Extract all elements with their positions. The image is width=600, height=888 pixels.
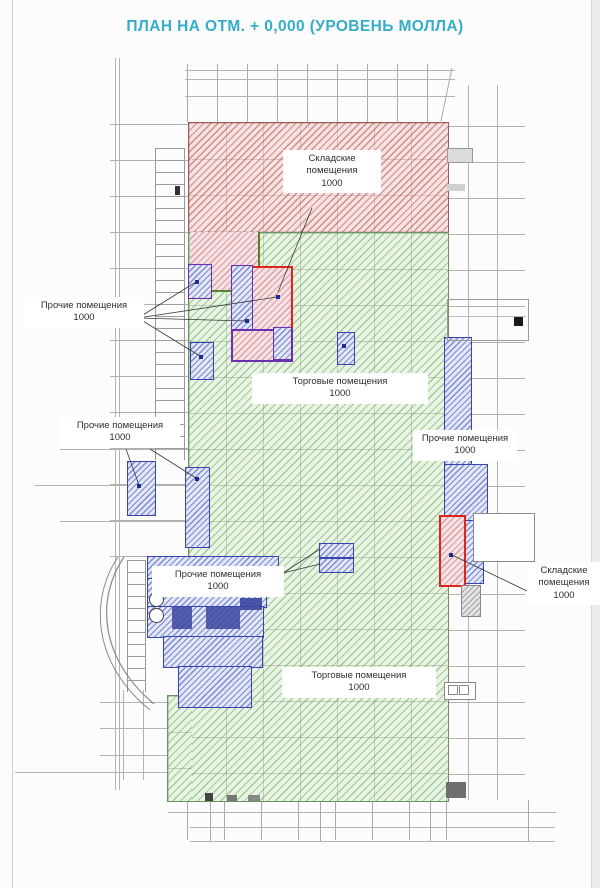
marker-dot	[449, 553, 453, 557]
grid-line	[210, 800, 211, 841]
entrance-block	[178, 666, 252, 708]
label-value: 1000	[254, 388, 426, 400]
loading-dock	[473, 513, 535, 562]
label-value: 1000	[62, 432, 178, 444]
page-edge-line	[12, 0, 13, 888]
retail-zone-main	[188, 232, 449, 802]
grid-line	[320, 800, 321, 841]
grid-line	[190, 827, 555, 828]
small-room-1	[319, 543, 354, 558]
dark-block	[446, 782, 466, 798]
label-value: 1000	[415, 445, 515, 457]
grid-line	[185, 79, 455, 80]
grid-line	[430, 800, 431, 841]
center-small-box	[337, 332, 355, 365]
grid-line	[185, 96, 455, 97]
grid-line	[528, 800, 529, 841]
label-text: Торговые помещения	[254, 376, 426, 388]
column-marker	[514, 317, 523, 326]
scanned-plan-page: ПЛАН НА ОТМ. + 0,000 (УРОВЕНЬ МОЛЛА)	[0, 0, 600, 888]
column-circle	[149, 608, 164, 623]
label-retail-bottom: Торговые помещения 1000	[282, 667, 436, 698]
left-room-a	[127, 461, 156, 516]
label-retail-center: Торговые помещения 1000	[252, 373, 428, 404]
entrance-core	[172, 607, 192, 629]
grid-line	[15, 772, 167, 773]
retail-zone-extension	[167, 695, 192, 802]
label-text: Прочие помещения	[62, 420, 178, 432]
label-value: 1000	[284, 682, 434, 694]
label-value: 1000	[303, 178, 361, 190]
grid-line	[168, 812, 556, 813]
wall-marker	[175, 186, 180, 195]
entrance-block	[163, 636, 263, 668]
grid-line	[60, 521, 188, 522]
grid-line	[100, 728, 167, 729]
marker-dot	[342, 344, 346, 348]
entrance-core	[240, 598, 262, 610]
roof-block	[447, 184, 465, 191]
door-marker	[248, 795, 260, 801]
service-block-cell	[448, 685, 458, 695]
label-value: 1000	[154, 581, 282, 593]
stair-ladder	[127, 560, 146, 692]
grid-line	[35, 485, 188, 486]
roof-block	[447, 148, 473, 163]
label-other-upper-left: Прочие помещения 1000	[24, 297, 144, 328]
label-text: Торговые помещения	[284, 670, 434, 682]
entrance-core	[206, 607, 240, 629]
grid-line	[185, 70, 455, 71]
label-text: Складские помещения	[303, 153, 361, 178]
marker-dot	[276, 295, 280, 299]
page-edge-strip	[591, 0, 600, 888]
label-text: Прочие помещения	[26, 300, 142, 312]
marker-dot	[195, 280, 199, 284]
label-other-mid-left: Прочие помещения 1000	[60, 417, 180, 448]
stair-ladder	[155, 148, 185, 460]
grid-line	[143, 690, 144, 780]
label-other-bottom-left: Прочие помещения 1000	[152, 566, 284, 597]
label-text: Прочие помещения	[154, 569, 282, 581]
label-text: Прочие помещения	[415, 433, 515, 445]
right-gray-room	[461, 585, 481, 617]
label-other-right: Прочие помещения 1000	[413, 430, 517, 461]
grid-band-top	[187, 64, 455, 122]
grid-line	[100, 755, 167, 756]
label-value: 1000	[26, 312, 142, 324]
page-title: ПЛАН НА ОТМ. + 0,000 (УРОВЕНЬ МОЛЛА)	[0, 18, 590, 36]
small-room-2	[319, 558, 354, 573]
label-storage-top: Складские помещения 1000	[283, 150, 381, 193]
marker-dot	[199, 355, 203, 359]
central-small-room	[273, 327, 292, 360]
other-room-b	[190, 342, 214, 380]
grid-line	[190, 841, 555, 842]
right-storage-room	[439, 515, 466, 587]
grid-band-bottom	[187, 800, 449, 840]
other-room-a	[188, 264, 212, 299]
grid-line	[100, 702, 167, 703]
service-block-cell	[459, 685, 469, 695]
marker-dot	[137, 484, 141, 488]
label-value: 1000	[535, 590, 593, 602]
marker-dot	[245, 319, 249, 323]
door-marker	[227, 795, 237, 801]
label-text: Складские помещения	[535, 565, 593, 590]
label-storage-right: Складские помещения 1000	[527, 562, 600, 605]
marker-dot	[195, 477, 199, 481]
door-marker	[205, 793, 213, 801]
grid-line	[123, 690, 124, 780]
